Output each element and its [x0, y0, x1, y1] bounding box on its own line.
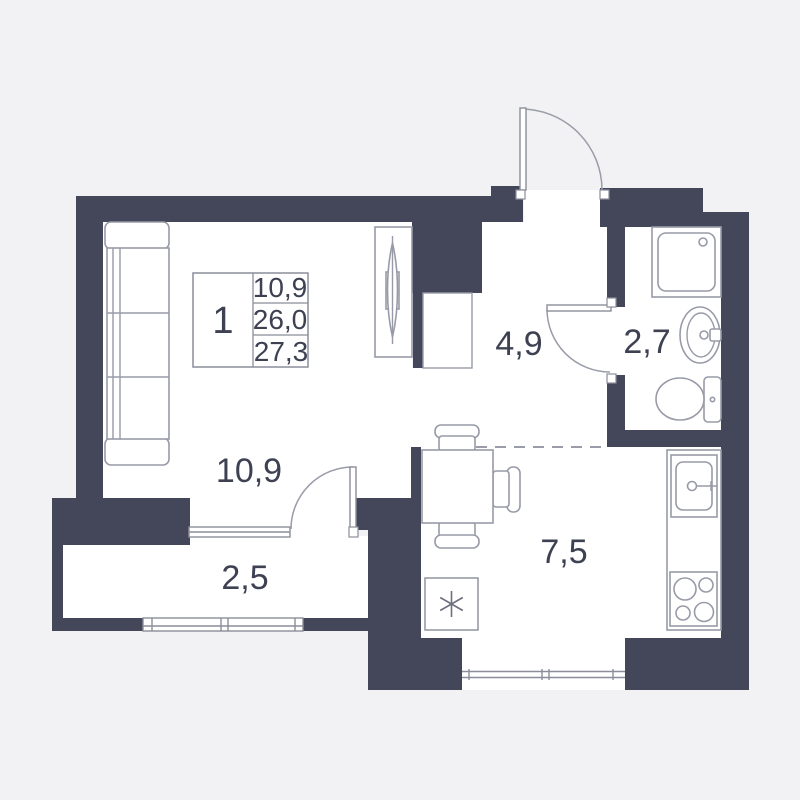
- balcony-door-leaf: [350, 467, 356, 529]
- wall-top-right-step: [703, 212, 749, 227]
- basin-faucet: [700, 331, 708, 339]
- bathroom-doorway: [607, 307, 625, 375]
- balcony-door-hinge: [349, 527, 358, 537]
- toilet-button: [710, 397, 714, 401]
- burner-small: [676, 606, 690, 620]
- wall-left: [76, 196, 103, 498]
- bathroom-door-hinge: [607, 298, 616, 307]
- room-kitchen-passage: [403, 368, 423, 447]
- chair-right-seat: [493, 471, 509, 507]
- wall-top: [76, 196, 523, 222]
- kitchen-faucet: [688, 482, 697, 491]
- hallway-label: 4,9: [495, 325, 542, 363]
- bathroom-door-jamb: [607, 374, 616, 383]
- hallway-floor-2: [472, 293, 607, 447]
- basin-faucet-base: [710, 329, 721, 341]
- entrance-door-leaf: [520, 108, 526, 190]
- total-area-value: 27,3: [254, 336, 309, 367]
- kitchen-window-recess: [462, 638, 625, 690]
- sofa-armrest-top: [105, 222, 169, 249]
- shower-drain: [699, 238, 707, 246]
- kitchen-label: 7,5: [540, 533, 587, 571]
- sofa: [105, 222, 169, 465]
- wall-balcony-bottom-left: [52, 618, 143, 631]
- wall-right: [721, 227, 749, 690]
- apartment-number: 1: [212, 300, 233, 342]
- toilet-bowl: [656, 378, 704, 420]
- wall-kitchen-bottom-right: [625, 638, 749, 690]
- burner-large: [674, 578, 696, 600]
- chair-bottom-back: [435, 535, 479, 548]
- balcony-outer-window: [143, 618, 303, 631]
- entrance-doorway: [524, 190, 600, 222]
- wall-room-balcony: [52, 498, 190, 545]
- wall-chunk-entry: [412, 222, 482, 293]
- wall-block-room-kitchen: [353, 498, 421, 530]
- wall-top-right: [600, 188, 703, 227]
- burner-large: [695, 603, 714, 622]
- wall-balcony-kitchen: [368, 530, 421, 690]
- wall-kitchen-bottom-left: [421, 638, 462, 690]
- wall-niche-left: [413, 293, 423, 368]
- wall-balcony-bottom-right: [303, 618, 368, 631]
- wall-bathroom-bottom: [607, 430, 749, 447]
- entrance-door-hinge: [516, 190, 525, 199]
- floor-plan-canvas: 1 10,9 26,0 27,3 10,9 4,9 2,7 7,5 2,5: [0, 0, 800, 800]
- dining-table: [422, 450, 493, 523]
- bathroom-label: 2,7: [623, 323, 670, 361]
- entrance-door-jamb: [600, 190, 609, 199]
- living-area-value: 10,9: [253, 272, 308, 303]
- living-room-label: 10,9: [216, 452, 282, 490]
- kitchen-counter: [667, 450, 721, 630]
- sofa-armrest-bottom: [105, 438, 169, 465]
- wall-bathroom-left-upper: [607, 227, 625, 307]
- wardrobe-niche: [423, 293, 472, 368]
- area-value: 26,0: [253, 304, 308, 335]
- refrigerator: [425, 578, 478, 630]
- tv-unit: [375, 227, 412, 357]
- burner-small: [699, 578, 713, 592]
- sofa-seat: [107, 248, 169, 439]
- floor-plan: 1 10,9 26,0 27,3 10,9 4,9 2,7 7,5 2,5: [0, 0, 800, 800]
- bathroom-door-leaf: [547, 305, 611, 311]
- wall-kitchen-divider: [411, 447, 421, 502]
- balcony-label: 2,5: [221, 559, 268, 597]
- balcony-floor: [63, 536, 368, 618]
- chair-top-seat: [439, 436, 475, 451]
